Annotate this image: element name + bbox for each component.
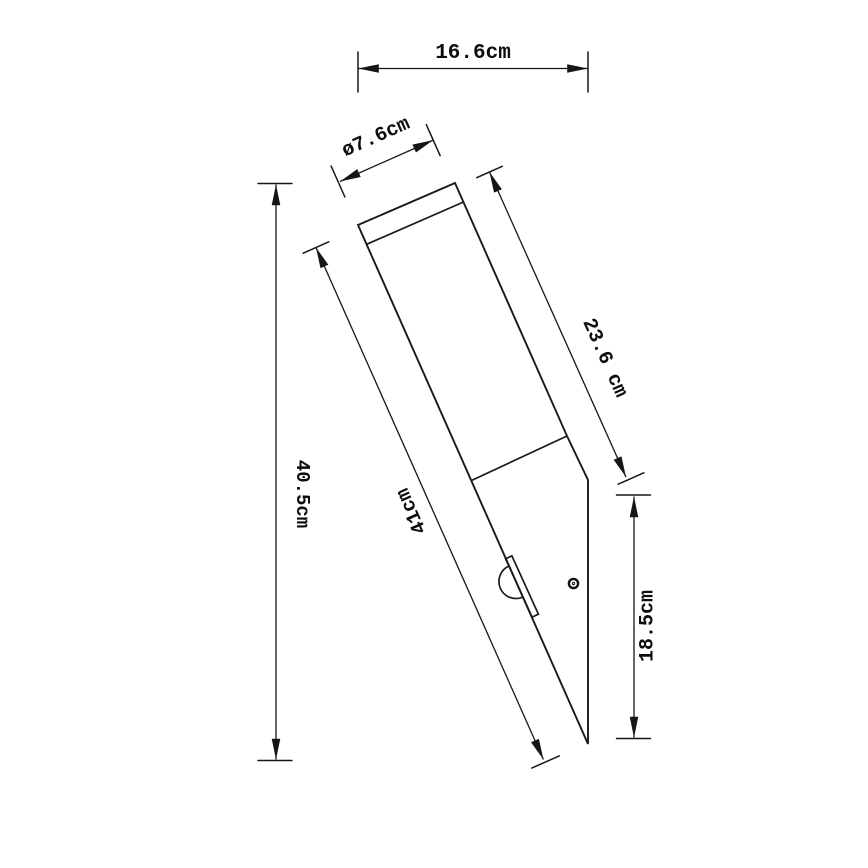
- dim-line-total-length: [316, 248, 543, 760]
- dim-label-overall-width: 16.6cm: [435, 42, 511, 65]
- dim-label-total-length: 41cm: [392, 484, 433, 537]
- dim-tube-length: 23.6 cm: [477, 166, 644, 484]
- dim-overall-width: 16.6cm: [358, 42, 588, 92]
- torch-light-dimension-drawing: 16.6cm ø7.6cm 23.6 cm 41cm 4: [0, 0, 868, 868]
- dim-label-diameter: ø7.6cm: [339, 113, 414, 163]
- fixture-cap-line: [367, 202, 464, 244]
- extension-line: [618, 473, 644, 484]
- mount-bracket-plate: [506, 556, 539, 617]
- dim-line-tube-length: [490, 172, 627, 477]
- extension-line: [532, 756, 559, 768]
- dim-overall-height: 40.5cm: [258, 184, 313, 761]
- dim-label-overall-height: 40.5cm: [291, 460, 313, 528]
- dim-label-tube-length: 23.6 cm: [577, 315, 632, 401]
- dim-total-length: 41cm: [303, 242, 559, 768]
- fixture-section-line: [472, 436, 568, 481]
- dimension-drawing-page: 16.6cm ø7.6cm 23.6 cm 41cm 4: [0, 0, 868, 868]
- dim-diameter: ø7.6cm: [331, 113, 440, 197]
- extension-line: [331, 166, 345, 197]
- fixture-outline: [358, 183, 588, 744]
- dim-back-height: 18.5cm: [617, 495, 660, 739]
- screw-icon: [569, 579, 578, 588]
- fixture-body: [358, 183, 588, 744]
- dim-label-back-height: 18.5cm: [637, 590, 660, 662]
- screw-center-icon: [572, 582, 574, 584]
